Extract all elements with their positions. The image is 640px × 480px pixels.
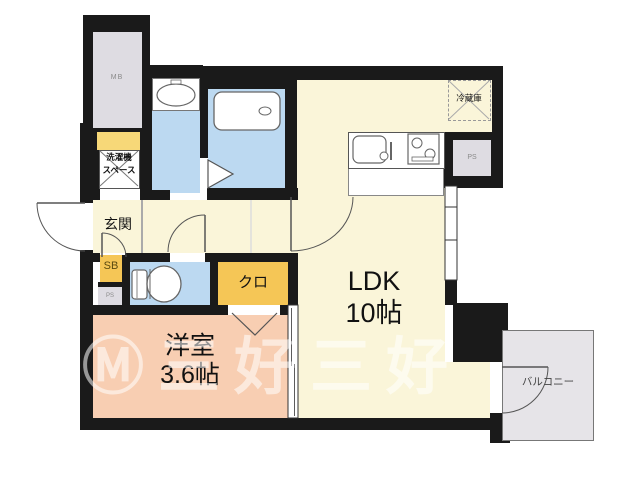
wall-left <box>80 123 93 203</box>
wall <box>98 282 122 287</box>
ldk-size: 10帖 <box>345 298 402 329</box>
pipe-space-left-label: PS <box>106 293 114 300</box>
laundry-label-line1: 洗濯機 <box>106 153 132 163</box>
wall <box>83 253 100 262</box>
ldk-name: LDK <box>348 266 401 297</box>
wall <box>200 80 297 89</box>
wall-right <box>492 80 503 140</box>
closet-opening <box>228 305 280 315</box>
wall-bottom <box>80 418 490 430</box>
wall <box>125 253 170 262</box>
watermark: Ⓜ三好三好 <box>82 328 487 412</box>
room-bathroom <box>208 89 285 190</box>
wall <box>285 89 297 190</box>
wall <box>145 190 170 200</box>
kitchen-lower-block <box>348 168 444 196</box>
wall <box>280 305 298 315</box>
front-door-arc <box>37 203 85 251</box>
wall <box>210 253 218 310</box>
laundry-opening <box>100 189 140 200</box>
meter-box-label: MB <box>111 74 124 82</box>
room-toilet <box>130 262 210 305</box>
laundry-label-line2: スペース <box>103 166 136 176</box>
wall <box>205 253 298 262</box>
refrigerator-label: 冷蔵庫 <box>456 94 482 104</box>
balcony-label: バルコニー <box>522 376 574 388</box>
shoe-box-label: SB <box>104 260 119 273</box>
wall <box>122 255 130 305</box>
front-door-opening <box>80 203 93 250</box>
wall <box>83 305 228 315</box>
wall <box>145 65 203 78</box>
gold-strip <box>97 132 140 150</box>
wall <box>200 78 208 158</box>
wall <box>288 253 298 305</box>
washbasin-counter <box>152 78 200 111</box>
wall <box>207 188 298 200</box>
wall <box>445 278 457 305</box>
entrance-label: 玄関 <box>104 216 132 232</box>
floor-plan: MB 洗濯機 スペース 玄関 SB PS クロ 洋室 3.6帖 LDK 10帖 … <box>0 0 640 480</box>
kitchen-counter <box>348 132 445 169</box>
closet-label: クロ <box>238 274 268 291</box>
pipe-space-right-label: PS <box>467 154 476 162</box>
window-right <box>445 186 457 280</box>
wall <box>145 78 152 193</box>
wall-top <box>200 66 503 80</box>
